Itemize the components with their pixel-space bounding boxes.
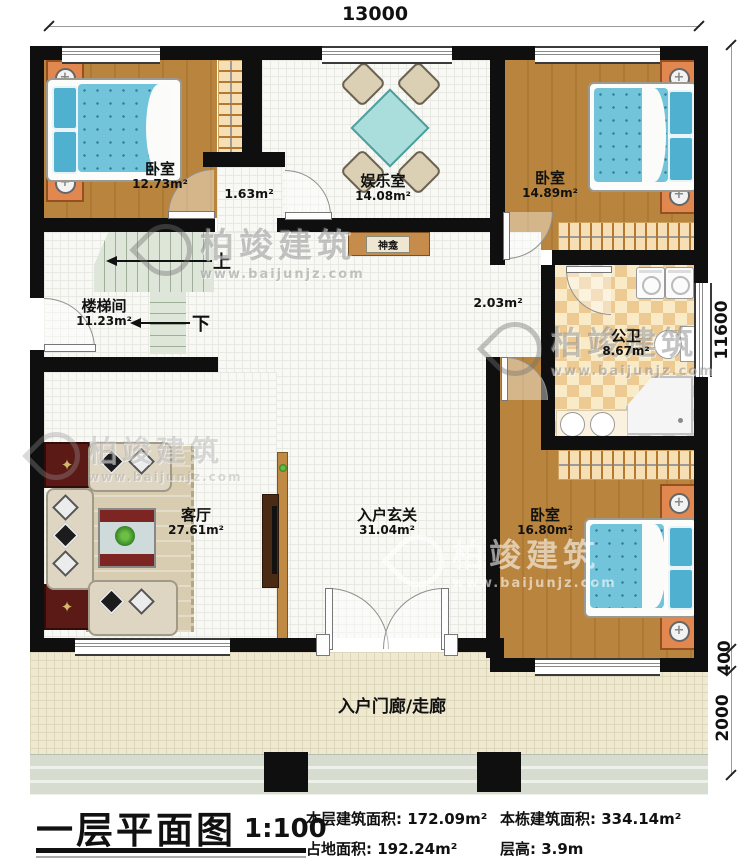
dimension-porch-depth: 2000 xyxy=(713,685,733,751)
wall xyxy=(694,377,708,672)
watermark: 柏竣建筑www.baijunjz.com xyxy=(32,428,243,484)
wall xyxy=(30,638,75,652)
bedroom3-pillow xyxy=(668,526,694,568)
wall xyxy=(44,357,218,372)
sink xyxy=(590,412,615,437)
title-underline xyxy=(36,848,306,853)
plant-icon xyxy=(115,526,135,546)
stairs-down-arrow-line xyxy=(140,322,190,324)
dimension-line-top xyxy=(48,26,700,27)
wall xyxy=(160,46,322,60)
bedroom3-closet xyxy=(558,450,696,480)
wall xyxy=(541,436,708,450)
bedroom1-pillow xyxy=(52,130,78,174)
floor-plan-canvas: 上 下 + + + + ✦ ✦ + + xyxy=(0,0,750,861)
wall xyxy=(242,46,262,152)
room-label-bedroom2: 卧室14.89m² xyxy=(522,170,578,201)
shrine-label: 神龛 xyxy=(366,236,410,253)
wall xyxy=(490,658,535,672)
title-underline-2 xyxy=(36,856,306,858)
bedroom3-sheet xyxy=(642,524,666,608)
window xyxy=(75,638,230,656)
wall xyxy=(30,46,62,60)
dimension-rear-offset: 400 xyxy=(715,628,735,688)
bedroom3-nightstand-top: + xyxy=(660,484,698,522)
stat-land-area: 占地面积: 192.24m² xyxy=(306,838,457,859)
stat-building-area: 本栋建筑面积: 334.14m² xyxy=(500,808,681,829)
plan-title: 一层平面图 xyxy=(36,800,236,854)
window xyxy=(62,46,160,64)
bedroom2-closet xyxy=(558,222,696,252)
bathroom-door xyxy=(566,266,612,273)
stairs-down-label: 下 xyxy=(192,310,210,336)
shower-drain xyxy=(678,418,683,423)
bedroom2-sheet xyxy=(642,88,666,182)
room-label-living: 客厅27.61m² xyxy=(168,507,224,538)
passage-area-label: 2.03m² xyxy=(473,295,522,310)
wall xyxy=(30,46,44,298)
stairs-up-arrow-head xyxy=(106,256,117,266)
tv-icon xyxy=(272,506,277,574)
wall xyxy=(552,250,694,265)
bedroom2-pillow xyxy=(668,136,694,182)
bedroom1-closet xyxy=(218,60,244,154)
room-label-foyer: 入户玄关31.04m² xyxy=(357,507,417,538)
vestibule-area-label: 1.63m² xyxy=(224,186,273,201)
bedroom2-pillow xyxy=(668,90,694,136)
wall xyxy=(230,638,322,652)
room-label-bedroom1: 卧室12.73m² xyxy=(132,161,188,192)
window xyxy=(322,46,452,64)
corner-table-bottom: ✦ xyxy=(44,584,90,630)
room-label-stairwell: 楼梯间11.23m² xyxy=(76,298,132,329)
stairwell-exterior-door xyxy=(44,344,96,352)
sofa-bottom xyxy=(88,580,178,636)
wall xyxy=(660,658,708,672)
room-label-entertainment: 娱乐室14.08m² xyxy=(355,173,411,204)
watermark-text: 柏竣建筑www.baijunjz.com xyxy=(88,428,243,484)
room-label-porch: 入户门廊/走廊 xyxy=(338,698,446,718)
window xyxy=(535,46,660,64)
room-label-bathroom: 公卫8.67m² xyxy=(602,328,649,359)
lamp-icon: + xyxy=(669,621,690,642)
wall xyxy=(30,350,44,652)
wall xyxy=(486,357,500,658)
entry-steps xyxy=(30,754,708,795)
bedroom2-door-swing xyxy=(506,212,553,259)
brand-logo-icon xyxy=(129,213,203,287)
entry-door-jamb xyxy=(316,634,330,656)
porch-column xyxy=(264,752,308,792)
brand-logo-icon xyxy=(22,422,90,490)
porch-column xyxy=(477,752,521,792)
dimension-depth: 11600 xyxy=(712,290,732,370)
bedroom2-door xyxy=(503,212,510,260)
entry-door-jamb xyxy=(444,634,458,656)
window xyxy=(535,658,660,676)
washing-machine xyxy=(665,267,694,299)
room-label-bedroom3: 卧室16.80m² xyxy=(517,507,573,538)
bedroom1-pillow xyxy=(52,86,78,130)
watermark-text: 柏竣建筑www.baijunjz.com xyxy=(200,218,365,282)
bedroom1-sheet xyxy=(146,84,172,172)
stat-floor-area: 本层建筑面积: 172.09m² xyxy=(306,808,487,829)
wall xyxy=(203,152,285,167)
watermark-text: 柏竣建筑www.baijunjz.com xyxy=(452,530,617,591)
brand-logo-icon xyxy=(477,310,553,386)
wall xyxy=(694,46,708,283)
washing-machine xyxy=(636,267,665,299)
dimension-width: 13000 xyxy=(340,3,410,25)
stat-story-height: 层高: 3.9m xyxy=(500,838,583,859)
sink xyxy=(560,412,585,437)
bedroom3-pillow xyxy=(668,568,694,610)
watermark: 柏竣建筑www.baijunjz.com xyxy=(392,530,617,591)
lamp-icon: + xyxy=(669,493,690,514)
watermark: 柏竣建筑www.baijunjz.com xyxy=(140,218,365,282)
plant-icon xyxy=(279,464,287,472)
